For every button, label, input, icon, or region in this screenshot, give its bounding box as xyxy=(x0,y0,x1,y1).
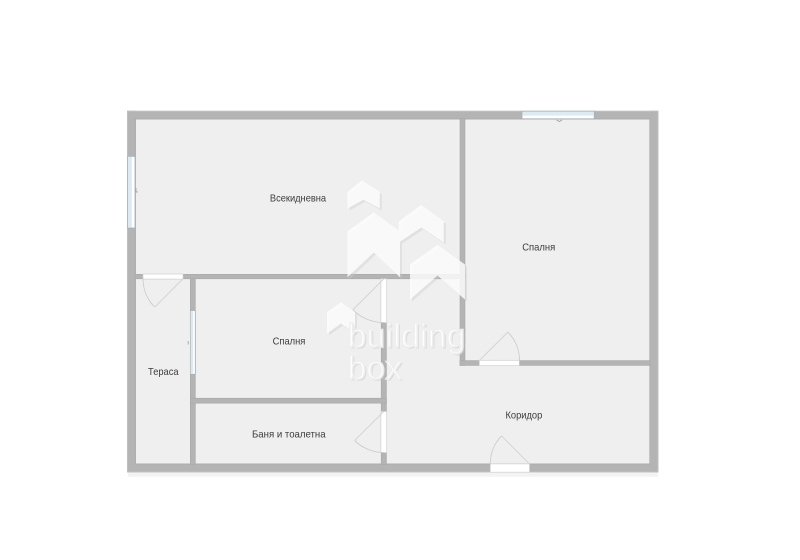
svg-text:Спалня: Спалня xyxy=(273,336,306,348)
svg-text:Всекидневна: Всекидневна xyxy=(270,192,326,204)
svg-text:Коридор: Коридор xyxy=(506,410,543,422)
svg-text:Баня и тоалетна: Баня и тоалетна xyxy=(252,428,326,440)
svg-text:Спалня: Спалня xyxy=(522,241,555,253)
svg-text:Тераса: Тераса xyxy=(148,366,179,378)
svg-text:box: box xyxy=(348,350,403,387)
